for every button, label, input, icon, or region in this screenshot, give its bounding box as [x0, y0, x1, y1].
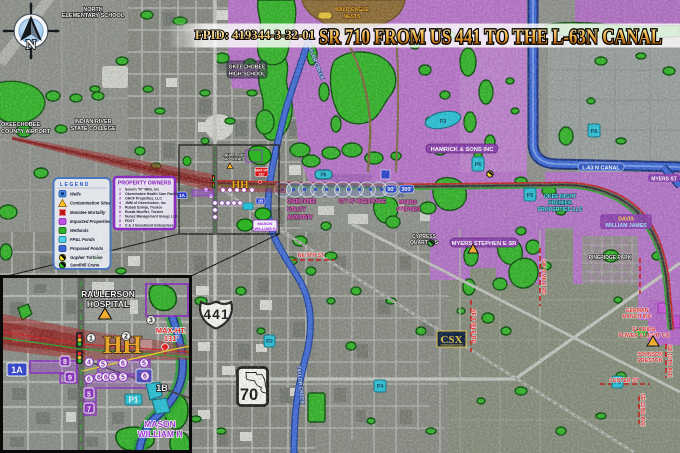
svg-text:4: 4	[119, 201, 121, 205]
svg-text:9: 9	[119, 224, 121, 228]
svg-text:Manatee Mortality: Manatee Mortality	[70, 210, 106, 215]
svg-text:OHCF Properties, LLC: OHCF Properties, LLC	[125, 197, 162, 201]
svg-text:FDOT: FDOT	[125, 219, 135, 223]
svg-text:131': 131'	[258, 173, 265, 177]
svg-text:1B: 1B	[258, 199, 263, 204]
svg-text:C & J Investment Enterprises: C & J Investment Enterprises	[125, 224, 174, 228]
svg-text:Nunez Management Group, Ltd.: Nunez Management Group, Ltd.	[125, 215, 178, 219]
svg-text:Impacted Properties: Impacted Properties	[70, 219, 111, 224]
svg-text:LEGEND: LEGEND	[60, 182, 90, 188]
svg-text:PROPERTY OWNERS: PROPERTY OWNERS	[118, 181, 172, 187]
svg-text:3: 3	[119, 197, 121, 201]
svg-text:Wells: Wells	[70, 192, 82, 197]
svg-text:2: 2	[119, 192, 121, 196]
svg-text:Rusak Mueffer, Trustee: Rusak Mueffer, Trustee	[125, 210, 163, 214]
svg-text:RAULERSON: RAULERSON	[222, 153, 245, 157]
svg-text:7: 7	[119, 215, 121, 219]
svg-text:Gopher Tortoise: Gopher Tortoise	[70, 255, 103, 260]
svg-text:FPID: 419344-3-32-01: FPID: 419344-3-32-01	[195, 28, 315, 42]
svg-text:Sandhill Crane: Sandhill Crane	[70, 263, 100, 268]
svg-text:FP&L Ponds: FP&L Ponds	[70, 237, 95, 242]
svg-text:JMM of Okeechobee, Inc: JMM of Okeechobee, Inc	[125, 201, 166, 205]
svg-text:Severn "R" Mills, Inc: Severn "R" Mills, Inc	[125, 188, 159, 192]
svg-text:1A: 1A	[179, 193, 186, 198]
svg-text:Proposed Ponds: Proposed Ponds	[70, 246, 104, 251]
svg-text:Contamination Sites: Contamination Sites	[70, 201, 111, 206]
svg-text:Wetlands: Wetlands	[70, 228, 89, 233]
svg-text:6: 6	[119, 210, 121, 214]
svg-text:SR 710 FROM US 441 TO THE L-63: SR 710 FROM US 441 TO THE L-63N CANAL	[319, 25, 662, 49]
svg-text:5: 5	[119, 206, 121, 210]
svg-text:1: 1	[119, 188, 121, 192]
svg-text:Rubab Szimja, Trustee: Rubab Szimja, Trustee	[125, 206, 162, 210]
svg-text:HOSPITAL: HOSPITAL	[225, 158, 244, 162]
svg-text:8: 8	[119, 219, 121, 223]
svg-text:N: N	[26, 38, 36, 53]
svg-text:WILLIAM H: WILLIAM H	[254, 226, 275, 231]
svg-text:Okeechobee Health Care Facilit: Okeechobee Health Care Facility	[125, 192, 179, 196]
